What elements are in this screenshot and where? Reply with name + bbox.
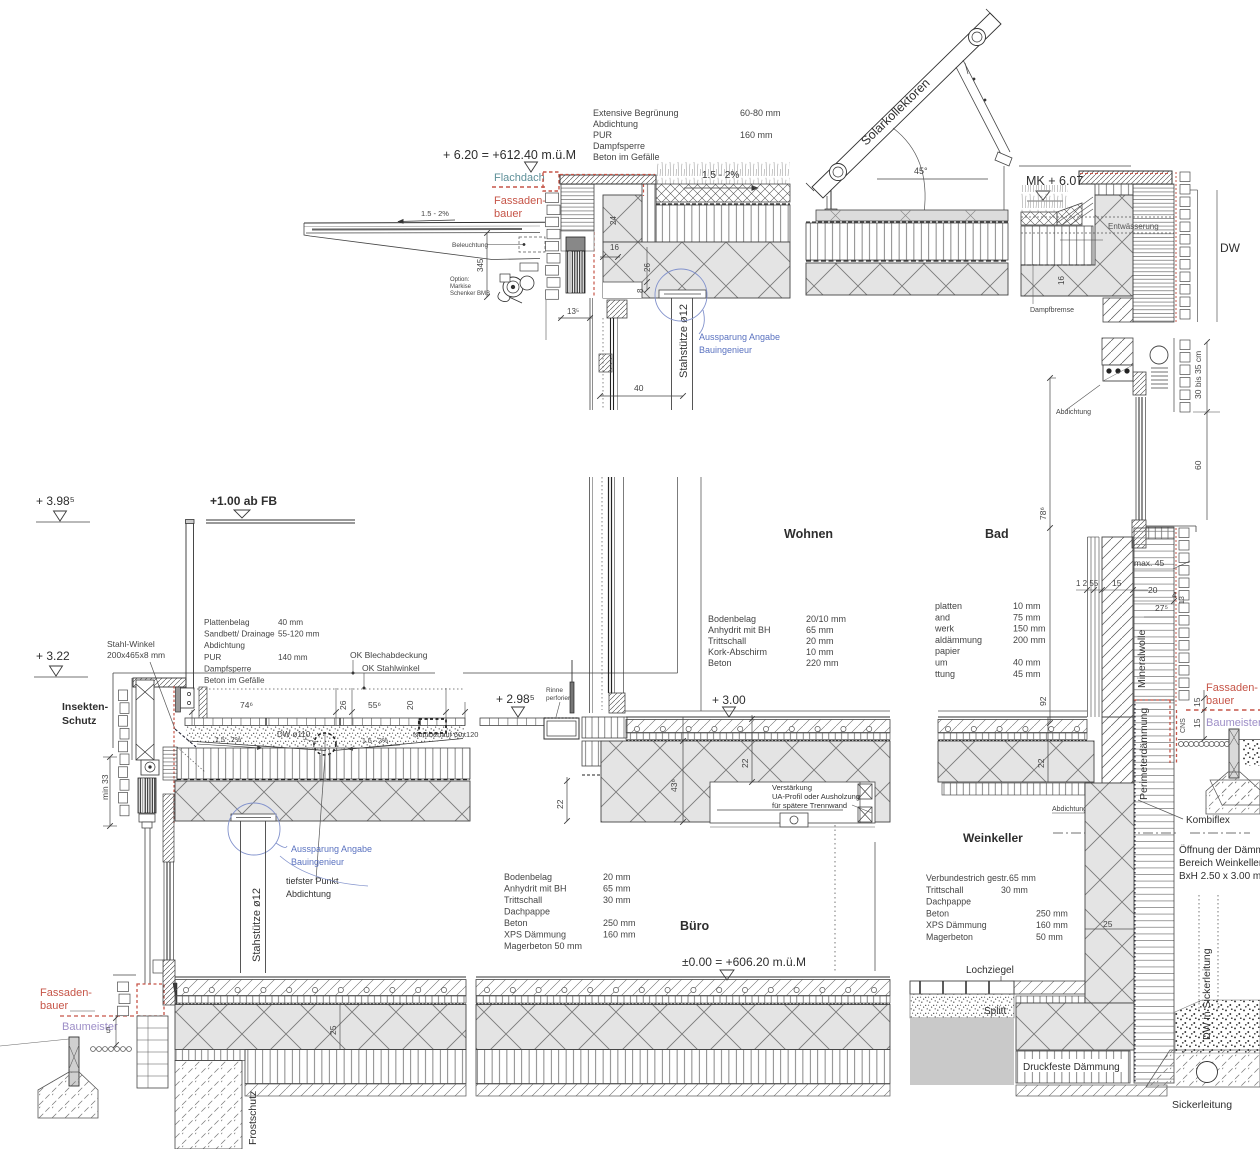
svg-text:20/10 mm: 20/10 mm — [806, 614, 846, 624]
svg-text:DW ø110: DW ø110 — [277, 730, 311, 739]
svg-text:60: 60 — [1193, 460, 1203, 470]
svg-text:Bereich Weinkeller: Bereich Weinkeller — [1179, 858, 1260, 869]
svg-text:Aussparung Angabe: Aussparung Angabe — [291, 844, 372, 854]
svg-text:20: 20 — [405, 700, 415, 710]
svg-text:Wohnen: Wohnen — [784, 527, 833, 541]
svg-text:43⁶: 43⁶ — [669, 779, 679, 792]
svg-text:BxH 2.50 x 3.00 m: BxH 2.50 x 3.00 m — [1179, 871, 1260, 882]
svg-text:ttung: ttung — [935, 669, 955, 679]
svg-text:65 mm: 65 mm — [1009, 873, 1036, 883]
svg-text:Beton: Beton — [504, 918, 528, 928]
svg-text:24: 24 — [609, 216, 618, 225]
svg-text:Perimeterdämmung: Perimeterdämmung — [1138, 708, 1150, 800]
svg-text:Bauingenieur: Bauingenieur — [291, 857, 344, 867]
svg-text:160 mm: 160 mm — [1036, 920, 1068, 930]
svg-text:DW: DW — [1220, 241, 1241, 255]
svg-text:13⁵: 13⁵ — [567, 307, 579, 316]
svg-text:perforiert: perforiert — [546, 695, 572, 702]
svg-text:+ 3.22: + 3.22 — [36, 649, 70, 663]
svg-text:Abdichtung: Abdichtung — [1056, 409, 1091, 416]
svg-text:min 33: min 33 — [100, 774, 110, 800]
svg-text:65 mm: 65 mm — [806, 625, 834, 635]
svg-text:30 mm: 30 mm — [1001, 885, 1028, 895]
svg-text:+ 6.20 = +612.40 m.ü.M: + 6.20 = +612.40 m.ü.M — [443, 148, 576, 162]
svg-text:26: 26 — [643, 263, 652, 272]
svg-text:Trittschall: Trittschall — [926, 885, 963, 895]
svg-text:10 mm: 10 mm — [1013, 601, 1041, 611]
svg-text:PUR: PUR — [593, 130, 613, 140]
svg-text:Abdichtung: Abdichtung — [593, 119, 638, 129]
svg-text:XPS Dämmung: XPS Dämmung — [504, 930, 566, 940]
svg-text:Frostschutz: Frostschutz — [247, 1091, 259, 1145]
svg-text:30 bis 35 cm: 30 bis 35 cm — [1193, 351, 1203, 399]
svg-text:27⁵: 27⁵ — [1155, 603, 1168, 613]
svg-text:20: 20 — [1148, 585, 1158, 595]
svg-text:16: 16 — [610, 243, 619, 252]
svg-text:Weinkeller: Weinkeller — [963, 831, 1023, 845]
svg-text:Büro: Büro — [680, 919, 710, 933]
svg-text:XPS Dämmung: XPS Dämmung — [926, 920, 987, 930]
svg-text:20 mm: 20 mm — [806, 636, 834, 646]
svg-text:tiefster Punkt: tiefster Punkt — [286, 876, 339, 886]
svg-text:Solarkollektoren: Solarkollektoren — [858, 76, 932, 148]
svg-text:Flachdach: Flachdach — [494, 172, 545, 184]
svg-text:papier: papier — [935, 646, 960, 656]
svg-text:Rinne: Rinne — [546, 687, 563, 694]
svg-text:Anhydrit mit BH: Anhydrit mit BH — [504, 884, 567, 894]
svg-text:Markise: Markise — [450, 284, 472, 290]
svg-text:Stahl-Winkel: Stahl-Winkel — [107, 639, 155, 649]
svg-text:55-120 mm: 55-120 mm — [278, 630, 320, 639]
svg-text:250 mm: 250 mm — [1036, 908, 1068, 918]
svg-text:65 mm: 65 mm — [603, 884, 631, 894]
svg-text:Insekten-: Insekten- — [62, 701, 109, 713]
svg-text:26: 26 — [338, 700, 348, 710]
svg-text:Sickerleitung: Sickerleitung — [1172, 1099, 1232, 1111]
svg-text:5: 5 — [106, 1025, 111, 1035]
svg-text:Schutz: Schutz — [62, 715, 96, 727]
svg-text:Dampfsperre: Dampfsperre — [204, 664, 252, 673]
svg-text:1 2 55: 1 2 55 — [1076, 579, 1099, 588]
svg-text:Beton: Beton — [708, 658, 732, 668]
svg-text:40: 40 — [634, 383, 644, 393]
svg-text:Fassaden-: Fassaden- — [1206, 682, 1258, 694]
svg-text:Fassaden-: Fassaden- — [40, 987, 92, 999]
svg-text:Sandbett/ Drainage: Sandbett/ Drainage — [204, 630, 275, 639]
svg-text:60-80 mm: 60-80 mm — [740, 108, 781, 118]
svg-text:Magerbeton 50 mm: Magerbeton 50 mm — [504, 941, 582, 951]
svg-text:max. 45: max. 45 — [1134, 558, 1165, 568]
svg-text:and: and — [935, 612, 950, 622]
svg-text:Dampfsperre: Dampfsperre — [593, 141, 645, 151]
svg-text:15: 15 — [1192, 718, 1202, 728]
svg-text:22: 22 — [740, 758, 750, 768]
svg-text:22: 22 — [1036, 758, 1046, 768]
svg-text:Verstärkung: Verstärkung — [772, 783, 812, 792]
svg-text:Trittschall: Trittschall — [504, 895, 542, 905]
svg-text:Abdichtung: Abdichtung — [1052, 806, 1087, 813]
svg-text:Abdichtung: Abdichtung — [204, 641, 245, 650]
svg-text:75 mm: 75 mm — [1013, 612, 1041, 622]
svg-text:Bad: Bad — [985, 527, 1009, 541]
svg-text:Dachpappe: Dachpappe — [504, 907, 550, 917]
svg-text:Lochziegel: Lochziegel — [966, 965, 1014, 976]
svg-text:+ 2.98⁵: + 2.98⁵ — [496, 692, 535, 706]
svg-text:+ 3.00: + 3.00 — [712, 693, 746, 707]
svg-text:55⁶: 55⁶ — [368, 700, 381, 710]
svg-text:+ 3.98⁵: + 3.98⁵ — [36, 494, 75, 508]
svg-text:15: 15 — [1112, 578, 1122, 588]
svg-text:200 mm: 200 mm — [1013, 635, 1046, 645]
svg-text:Bauingenieur: Bauingenieur — [699, 345, 752, 355]
svg-text:Druckfeste Dämmung: Druckfeste Dämmung — [1023, 1062, 1120, 1073]
svg-text:Beton im Gefälle: Beton im Gefälle — [204, 676, 265, 685]
svg-text:40 mm: 40 mm — [1013, 658, 1041, 668]
svg-text:Verbundestrich gestr.: Verbundestrich gestr. — [926, 873, 1009, 883]
svg-text:Magerbeton: Magerbeton — [926, 932, 973, 942]
svg-text:74⁶: 74⁶ — [240, 700, 253, 710]
svg-text:UA-Profil oder Ausholzung: UA-Profil oder Ausholzung — [772, 792, 860, 801]
svg-text:Beleuchtung: Beleuchtung — [452, 242, 489, 249]
svg-text:Kork-Abschirm: Kork-Abschirm — [708, 647, 767, 657]
svg-text:150 mm: 150 mm — [1013, 624, 1046, 634]
svg-text:Öffnung der Dämmu: Öffnung der Dämmu — [1179, 844, 1260, 856]
svg-text:25: 25 — [328, 1025, 338, 1035]
svg-text:Trittschall: Trittschall — [708, 636, 746, 646]
svg-text:16: 16 — [1057, 276, 1066, 285]
svg-text:160 mm: 160 mm — [603, 930, 636, 940]
svg-text:Schenker BMB: Schenker BMB — [450, 291, 490, 297]
svg-text:Beton: Beton — [926, 908, 949, 918]
svg-text:15: 15 — [1192, 697, 1202, 707]
svg-text:140 mm: 140 mm — [278, 653, 308, 662]
svg-text:bauer: bauer — [1206, 695, 1234, 707]
svg-text:Beton im Gefälle: Beton im Gefälle — [593, 152, 660, 162]
svg-text:45 mm: 45 mm — [1013, 669, 1041, 679]
svg-text:bauer: bauer — [40, 1000, 68, 1012]
svg-text:bauer: bauer — [494, 208, 522, 220]
svg-text:Dachpappe: Dachpappe — [926, 897, 971, 907]
svg-text:Stahstütze ø12: Stahstütze ø12 — [251, 888, 263, 962]
svg-text:für spätere Trennwand: für spätere Trennwand — [772, 801, 847, 810]
svg-text:Fassaden-: Fassaden- — [494, 195, 546, 207]
svg-text:25: 25 — [1103, 919, 1113, 929]
svg-text:50 mm: 50 mm — [1036, 932, 1063, 942]
svg-text:13: 13 — [1179, 596, 1186, 604]
svg-text:40 mm: 40 mm — [278, 618, 303, 627]
svg-text:22: 22 — [555, 799, 565, 809]
svg-text:30 mm: 30 mm — [603, 895, 631, 905]
svg-text:200x465x8 mm: 200x465x8 mm — [107, 650, 165, 660]
svg-text:Plattenbelag: Plattenbelag — [204, 618, 250, 627]
svg-text:+1.00 ab FB: +1.00 ab FB — [210, 494, 277, 508]
svg-text:Extensive Begrünung: Extensive Begrünung — [593, 108, 679, 118]
svg-text:CNS: CNS — [1180, 718, 1187, 733]
svg-text:aldämmung: aldämmung — [935, 635, 982, 645]
svg-text:1.5 - 2%: 1.5 - 2% — [215, 737, 241, 744]
svg-text:um: um — [935, 658, 948, 668]
svg-text:Aussparung Angabe: Aussparung Angabe — [699, 332, 780, 342]
svg-text:220 mm: 220 mm — [806, 658, 839, 668]
svg-text:DW in Sickerleitung: DW in Sickerleitung — [1201, 948, 1213, 1040]
svg-text:Dampfbremse: Dampfbremse — [1030, 307, 1074, 314]
svg-text:78⁶: 78⁶ — [1038, 507, 1048, 520]
svg-text:OK Blechabdeckung: OK Blechabdeckung — [350, 650, 428, 660]
svg-text:Bodenbelag: Bodenbelag — [708, 614, 756, 624]
svg-text:OK Stahlwinkel: OK Stahlwinkel — [362, 663, 420, 673]
svg-text:4: 4 — [1172, 591, 1177, 600]
svg-text:Splitt: Splitt — [984, 1006, 1006, 1017]
svg-text:platten: platten — [935, 601, 962, 611]
svg-text:Baumeister: Baumeister — [1206, 717, 1260, 729]
svg-text:10 mm: 10 mm — [806, 647, 834, 657]
svg-text:Stahstütze ø12: Stahstütze ø12 — [678, 304, 690, 378]
svg-text:345: 345 — [476, 258, 485, 272]
svg-text:werk: werk — [934, 624, 955, 634]
svg-text:92: 92 — [1038, 696, 1048, 706]
svg-text:1.5 - 2%: 1.5 - 2% — [362, 738, 388, 745]
svg-text:Abdichtung: Abdichtung — [286, 889, 331, 899]
svg-text:1.5 - 2%: 1.5 - 2% — [421, 209, 449, 218]
svg-text:1.5 - 2%: 1.5 - 2% — [702, 170, 739, 181]
svg-text:160 mm: 160 mm — [740, 130, 773, 140]
svg-text:8: 8 — [636, 288, 645, 293]
svg-text:Kombiflex: Kombiflex — [1186, 815, 1230, 826]
svg-text:250 mm: 250 mm — [603, 918, 636, 928]
svg-text:20 mm: 20 mm — [603, 872, 631, 882]
svg-text:Mineralwolle: Mineralwolle — [1136, 629, 1148, 688]
svg-text:Anhydrit mit BH: Anhydrit mit BH — [708, 625, 771, 635]
svg-text:PUR: PUR — [204, 653, 221, 662]
svg-text:Option:: Option: — [450, 277, 470, 283]
svg-text:Bodenbelag: Bodenbelag — [504, 872, 552, 882]
svg-text:±0.00 = +606.20 m.ü.M: ±0.00 = +606.20 m.ü.M — [682, 955, 806, 969]
